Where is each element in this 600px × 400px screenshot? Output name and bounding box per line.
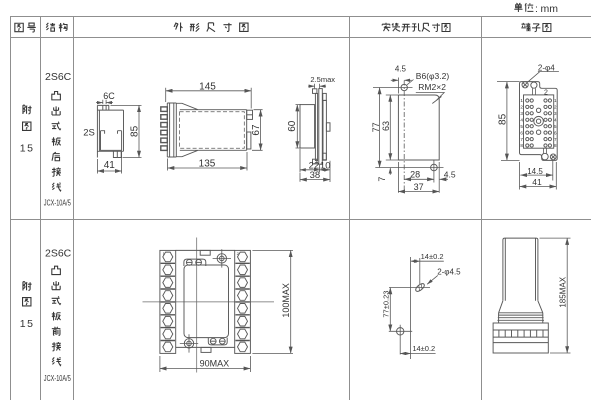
- svg-text:90MAX: 90MAX: [200, 358, 230, 368]
- svg-text:2S6C: 2S6C: [45, 247, 72, 259]
- svg-text:28: 28: [410, 170, 420, 180]
- svg-text:100MAX: 100MAX: [281, 283, 291, 318]
- svg-text:8: 8: [554, 143, 557, 148]
- svg-text:2.5max: 2.5max: [310, 75, 335, 84]
- svg-text:JCX-10A/5: JCX-10A/5: [44, 198, 71, 207]
- svg-text:5: 5: [520, 124, 523, 129]
- svg-text:14±0.2: 14±0.2: [412, 344, 435, 353]
- svg-text:6: 6: [554, 130, 557, 135]
- svg-text:37: 37: [414, 182, 424, 192]
- svg-text:77: 77: [371, 122, 381, 132]
- svg-text:7: 7: [554, 137, 557, 142]
- svg-text:85: 85: [497, 113, 508, 125]
- svg-text:14.5: 14.5: [527, 167, 543, 176]
- svg-text:mm: mm: [541, 3, 559, 15]
- svg-text:3: 3: [554, 111, 557, 116]
- svg-text:4.5: 4.5: [444, 170, 456, 180]
- svg-text:135: 135: [199, 159, 216, 170]
- svg-text:1: 1: [554, 98, 557, 103]
- svg-text:7: 7: [377, 177, 387, 182]
- svg-text:5: 5: [554, 124, 557, 129]
- svg-text:2S6C: 2S6C: [45, 71, 72, 83]
- svg-text:4: 4: [554, 118, 557, 123]
- svg-text:B6(φ3.2): B6(φ3.2): [416, 71, 450, 81]
- svg-text:60: 60: [287, 120, 298, 132]
- svg-text:85: 85: [129, 125, 140, 137]
- svg-text:2: 2: [544, 90, 548, 97]
- svg-text:41: 41: [532, 177, 542, 187]
- svg-text:2-φ4.5: 2-φ4.5: [437, 267, 461, 276]
- svg-text:RM2×2: RM2×2: [418, 82, 446, 92]
- svg-text:6C: 6C: [103, 91, 115, 101]
- svg-text:6: 6: [520, 130, 523, 135]
- svg-text:3: 3: [520, 111, 523, 116]
- svg-text:38: 38: [310, 170, 321, 181]
- svg-text:77±0.23: 77±0.23: [382, 291, 391, 318]
- svg-text:1: 1: [520, 98, 523, 103]
- svg-text:8: 8: [520, 143, 523, 148]
- svg-text:15: 15: [20, 143, 35, 155]
- svg-text:4: 4: [520, 118, 523, 123]
- svg-text:4.5: 4.5: [395, 65, 407, 74]
- svg-text:2S: 2S: [83, 127, 95, 138]
- svg-text:2: 2: [554, 105, 557, 110]
- svg-text:63: 63: [381, 121, 391, 131]
- svg-text:185MAX: 185MAX: [559, 276, 568, 307]
- svg-text:14±0.2: 14±0.2: [421, 252, 444, 261]
- svg-text:15: 15: [20, 318, 35, 330]
- svg-text:41: 41: [104, 160, 116, 171]
- svg-text:2: 2: [520, 105, 523, 110]
- svg-text:7: 7: [520, 137, 523, 142]
- svg-text:JCX-10A/5: JCX-10A/5: [44, 374, 71, 383]
- svg-text:10: 10: [320, 161, 331, 172]
- svg-text:145: 145: [199, 82, 216, 93]
- svg-text:67: 67: [251, 124, 262, 136]
- svg-text::: :: [535, 3, 538, 15]
